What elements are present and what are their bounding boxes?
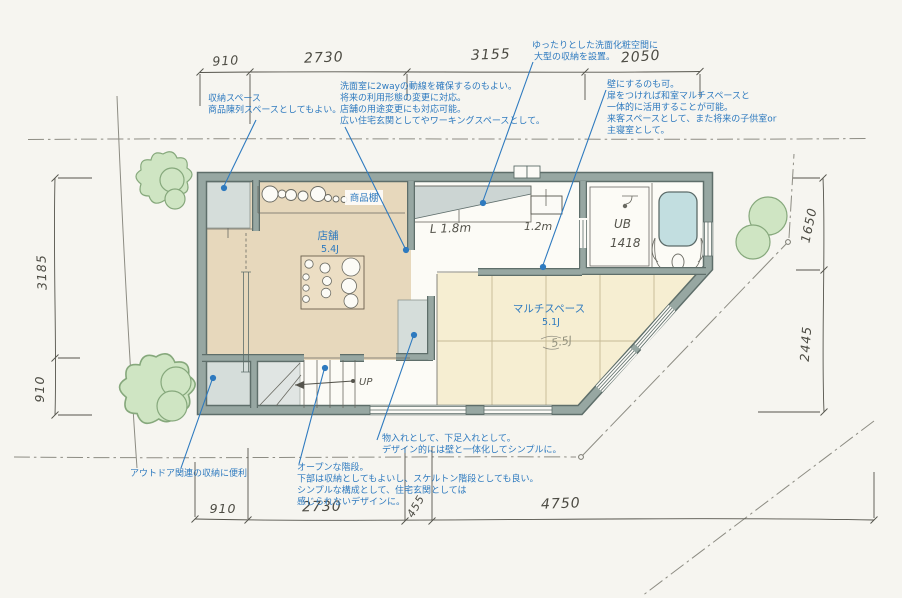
unit-bath-label: UB <box>614 217 631 231</box>
svg-text:感じられないデザインに。: 感じられないデザインに。 <box>297 496 405 508</box>
counter-label: L 1.8m <box>430 221 472 236</box>
hall-closet <box>398 300 428 354</box>
dim-right-2: 2445 <box>797 325 814 362</box>
storage-closet-top-left <box>206 182 250 228</box>
svg-text:シンプルな構成として、住宅玄関としては: シンプルな構成として、住宅玄関としては <box>297 484 467 496</box>
dim-bottom-4: 4750 <box>541 495 581 512</box>
annotation-wall-option: 壁にするのも可。 扉をつければ和室マルチスペースと 一体的に活用することが可能。… <box>607 78 777 136</box>
tree-bottom-left <box>120 354 196 423</box>
annotation-storage-top: 収納スペース 商品陳列スペースとしてもよい。 <box>208 92 341 116</box>
top-window <box>514 166 540 178</box>
dim-top-3: 3155 <box>471 46 511 63</box>
svg-text:壁にするのも可。: 壁にするのも可。 <box>607 78 679 90</box>
svg-text:主寝室として。: 主寝室として。 <box>607 124 669 136</box>
window <box>370 405 466 415</box>
svg-text:デザイン的には壁と一体化してシンプルに。: デザイン的には壁と一体化してシンプルに。 <box>382 444 561 456</box>
svg-text:大型の収納を設置。: 大型の収納を設置。 <box>534 51 615 63</box>
leader-dot <box>480 200 486 206</box>
svg-text:アウトドア関連の収納に便利: アウトドア関連の収納に便利 <box>130 467 247 479</box>
svg-text:一体的に活用することが可能。: 一体的に活用することが可能。 <box>607 101 733 113</box>
sliding-door <box>580 220 587 248</box>
leader-dot <box>411 332 417 338</box>
boundary-point <box>786 240 791 245</box>
shop-area: 5.4J <box>321 244 339 255</box>
svg-text:来客スペースとして、また将来の子供室or: 来客スペースとして、また将来の子供室or <box>607 113 777 125</box>
dim-right-1: 1650 <box>798 206 820 244</box>
plan-canvas: 910 2730 3155 2050 910 2730 455 4750 318… <box>0 0 902 598</box>
tree-top-left <box>136 152 192 209</box>
annotation-outdoor-storage: アウトドア関連の収納に便利 <box>130 467 247 479</box>
svg-text:将来の利用形態の変更に対応。: 将来の利用形態の変更に対応。 <box>340 92 466 104</box>
dimension-bottom: 910 2730 455 4750 <box>192 447 878 525</box>
stairs-up-label: UP <box>359 377 373 388</box>
svg-text:物入れとして、下足入れとして。: 物入れとして、下足入れとして。 <box>382 432 516 444</box>
dim-left-1: 3185 <box>33 254 49 290</box>
floor-plan-sketch: 910 2730 3155 2050 910 2730 455 4750 318… <box>0 0 902 598</box>
svg-text:下部は収納としてもよいし、スケルトン階段としても良い。: 下部は収納としてもよいし、スケルトン階段としても良い。 <box>297 473 539 485</box>
svg-text:店舗の用途変更にも対応可能。: 店舗の用途変更にも対応可能。 <box>340 103 466 115</box>
display-table <box>301 256 364 309</box>
annotation-closet: 物入れとして、下足入れとして。 デザイン的には壁と一体化してシンプルに。 <box>382 432 561 456</box>
window <box>703 222 713 256</box>
boundary-point <box>579 455 584 460</box>
leader-dot <box>403 247 409 253</box>
svg-text:収納スペース: 収納スペース <box>208 92 261 104</box>
leader-dot <box>210 375 216 381</box>
leader-dot <box>221 185 227 191</box>
dim-bottom-1: 910 <box>210 501 237 516</box>
svg-text:洗面室に2wayの動線を確保するのもよい。: 洗面室に2wayの動線を確保するのもよい。 <box>340 80 517 92</box>
multi-space-label: マルチスペース <box>513 303 585 315</box>
floor-plan <box>202 177 708 410</box>
shop-label: 店舗 <box>318 229 339 242</box>
annotation-washroom-2way: 洗面室に2wayの動線を確保するのもよい。 将来の利用形態の変更に対応。 店舗の… <box>340 80 545 127</box>
svg-text:商品陳列スペースとしてもよい。: 商品陳列スペースとしてもよい。 <box>208 104 341 116</box>
svg-text:ゆったりとした洗面化粧空間に: ゆったりとした洗面化粧空間に <box>532 39 658 51</box>
basin-label: 1.2m <box>524 220 552 233</box>
svg-text:オープンな階段。: オープンな階段。 <box>297 461 368 473</box>
multi-space-area: 5.1J <box>542 317 560 328</box>
tree-right <box>736 197 787 259</box>
shelf-label: 商品棚 <box>350 192 379 204</box>
leader-dot <box>540 264 546 270</box>
dim-top-1: 910 <box>212 52 240 68</box>
dim-left-2: 910 <box>32 376 47 403</box>
leader-dot <box>322 365 328 371</box>
unit-bath-size: 1418 <box>610 236 641 250</box>
dim-bottom-3: 455 <box>404 493 427 520</box>
dimension-left: 3185 910 <box>32 175 92 419</box>
svg-text:広い住宅玄関としてやワーキングスペースとして。: 広い住宅玄関としてやワーキングスペースとして。 <box>340 115 545 127</box>
svg-text:扉をつければ和室マルチスペースと: 扉をつければ和室マルチスペースと <box>607 90 750 102</box>
room-multi-space-floor <box>437 268 706 408</box>
dim-top-2: 2730 <box>304 49 344 66</box>
window <box>484 405 552 415</box>
